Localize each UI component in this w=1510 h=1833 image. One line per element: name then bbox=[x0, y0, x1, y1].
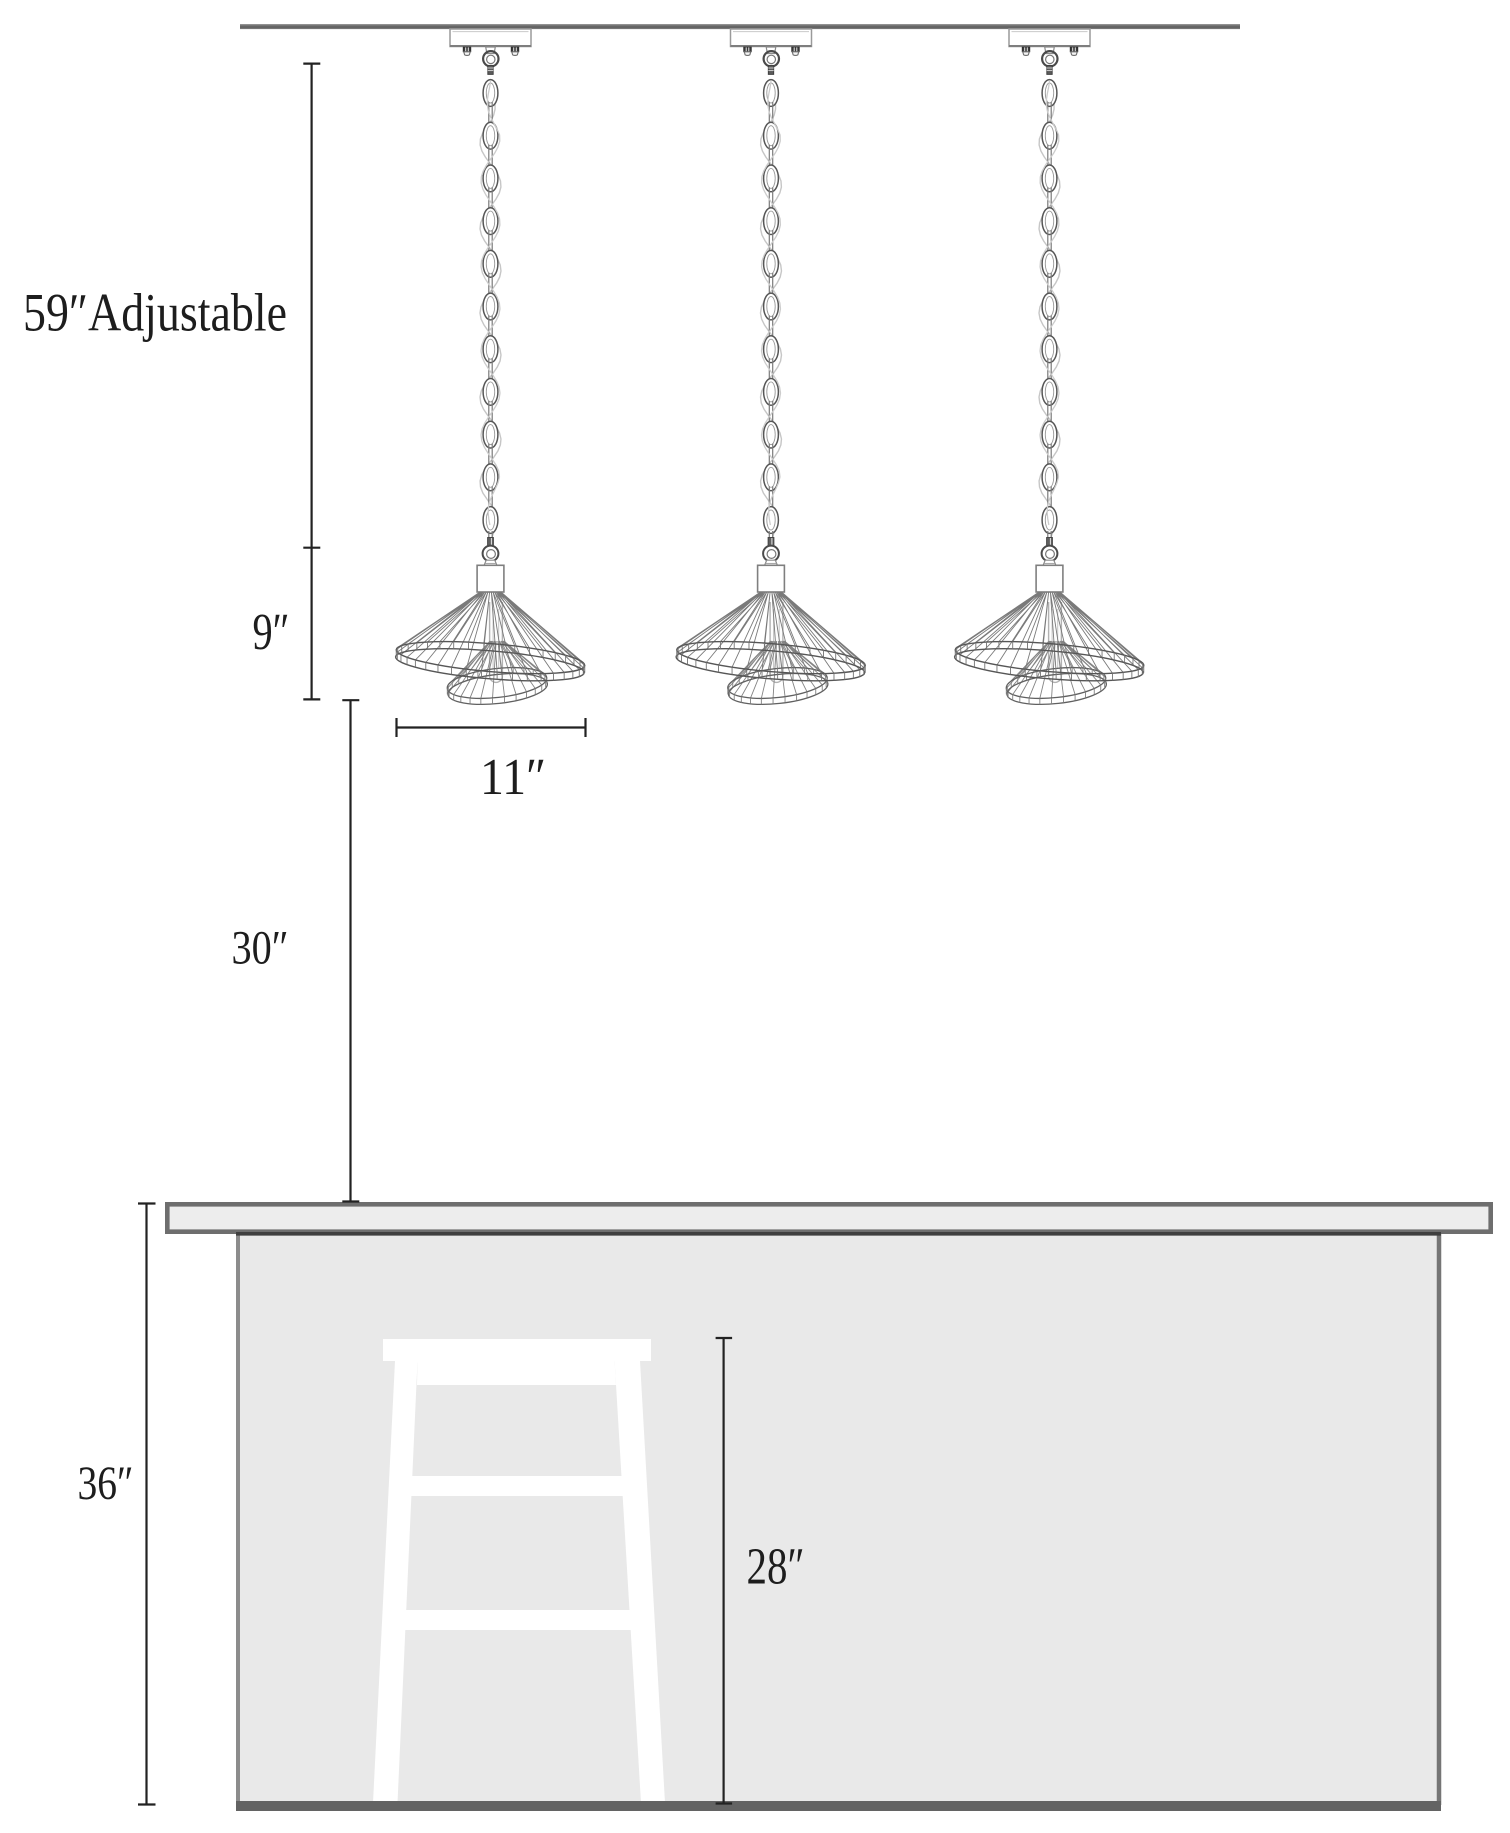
svg-text:36″: 36″ bbox=[78, 1457, 134, 1510]
svg-text:28″: 28″ bbox=[747, 1539, 805, 1596]
svg-text:9″: 9″ bbox=[253, 604, 290, 661]
svg-text:11″: 11″ bbox=[480, 749, 546, 806]
svg-text:30″: 30″ bbox=[232, 922, 289, 975]
svg-text:59″Adjustable: 59″Adjustable bbox=[23, 283, 287, 343]
